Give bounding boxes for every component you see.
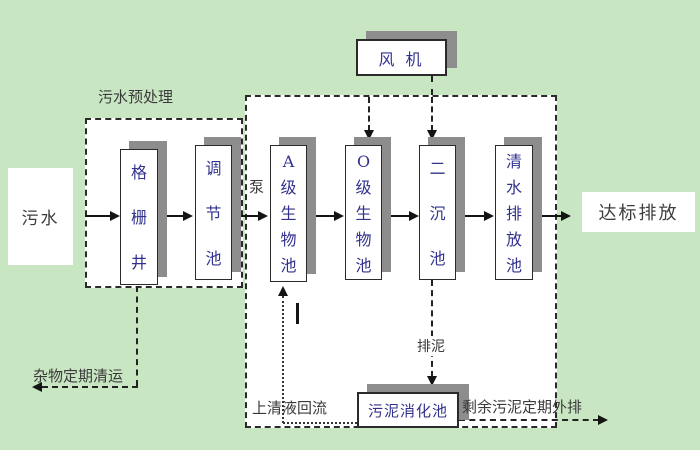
debris-line-horizontal [42, 386, 138, 388]
debris-removal-label: 杂物定期清运 [33, 365, 123, 386]
supernatant-line-horizontal [283, 422, 357, 424]
o-level-bio-tank-box: O 级 生 物 池 [345, 145, 382, 280]
flow-arrow-regulation-to-abio [258, 211, 268, 221]
excess-sludge-arrow-right [598, 415, 608, 425]
blower-branch-line-secondary [431, 97, 433, 131]
flow-line-gridwell-to-regulation [159, 215, 184, 217]
flow-arrow-gridwell-to-regulation [183, 211, 193, 221]
pretreatment-group-label: 污水预处理 [98, 86, 173, 107]
regulation-tank-box: 调 节 池 [195, 145, 232, 280]
a-level-bio-tank-box: A 级 生 物 池 [270, 145, 307, 282]
tick-mark [296, 303, 299, 324]
flow-line-abio-to-obio [308, 215, 335, 217]
supernatant-arrow-up [278, 286, 288, 296]
sludge-arrow-down [427, 376, 437, 386]
excess-sludge-out-label: 剩余污泥定期外排 [462, 396, 582, 417]
flow-arrow-clearwater-to-discharge [561, 211, 571, 221]
blower-branch-line-obio [368, 97, 370, 131]
flow-line-regulation-to-abio [233, 215, 259, 217]
flow-line-clearwater-to-discharge [534, 215, 562, 217]
blower-box: 风 机 [356, 39, 447, 76]
flow-arrow-abio-to-obio [334, 211, 344, 221]
flow-line-sewage-to-gridwell [85, 215, 111, 217]
secondary-sedimentation-tank-box: 二 沉 池 [419, 145, 456, 280]
sludge-line-vertical [431, 280, 433, 377]
debris-line-vertical [136, 286, 138, 386]
excess-sludge-line [459, 419, 599, 421]
clear-water-discharge-tank-box: 清 水 排 放 池 [495, 145, 533, 280]
flow-line-obio-to-secondary [383, 215, 410, 217]
sludge-discharge-label: 排泥 [415, 336, 447, 356]
standard-discharge-box: 达标排放 [582, 192, 695, 232]
sludge-digestion-tank-box: 污泥消化池 [357, 392, 459, 428]
flow-arrow-obio-to-secondary [409, 211, 419, 221]
grid-well-box: 格 栅 井 [120, 149, 158, 285]
sewage-source-box: 污水 [8, 168, 73, 265]
blower-arrow-secondary [427, 130, 437, 140]
flow-line-secondary-to-clearwater [456, 215, 485, 217]
supernatant-return-label: 上清液回流 [252, 397, 327, 418]
flow-arrow-secondary-to-clearwater [484, 211, 494, 221]
blower-stem-line [431, 76, 433, 95]
flow-arrow-sewage-to-gridwell [110, 211, 120, 221]
wastewater-treatment-flow-diagram: 污水预处理 泵 杂物定期清运 上清液回流 排泥 剩余污泥定期外排 污水 达标排放… [0, 0, 700, 450]
pump-label: 泵 [249, 176, 264, 197]
blower-arrow-obio [364, 130, 374, 140]
